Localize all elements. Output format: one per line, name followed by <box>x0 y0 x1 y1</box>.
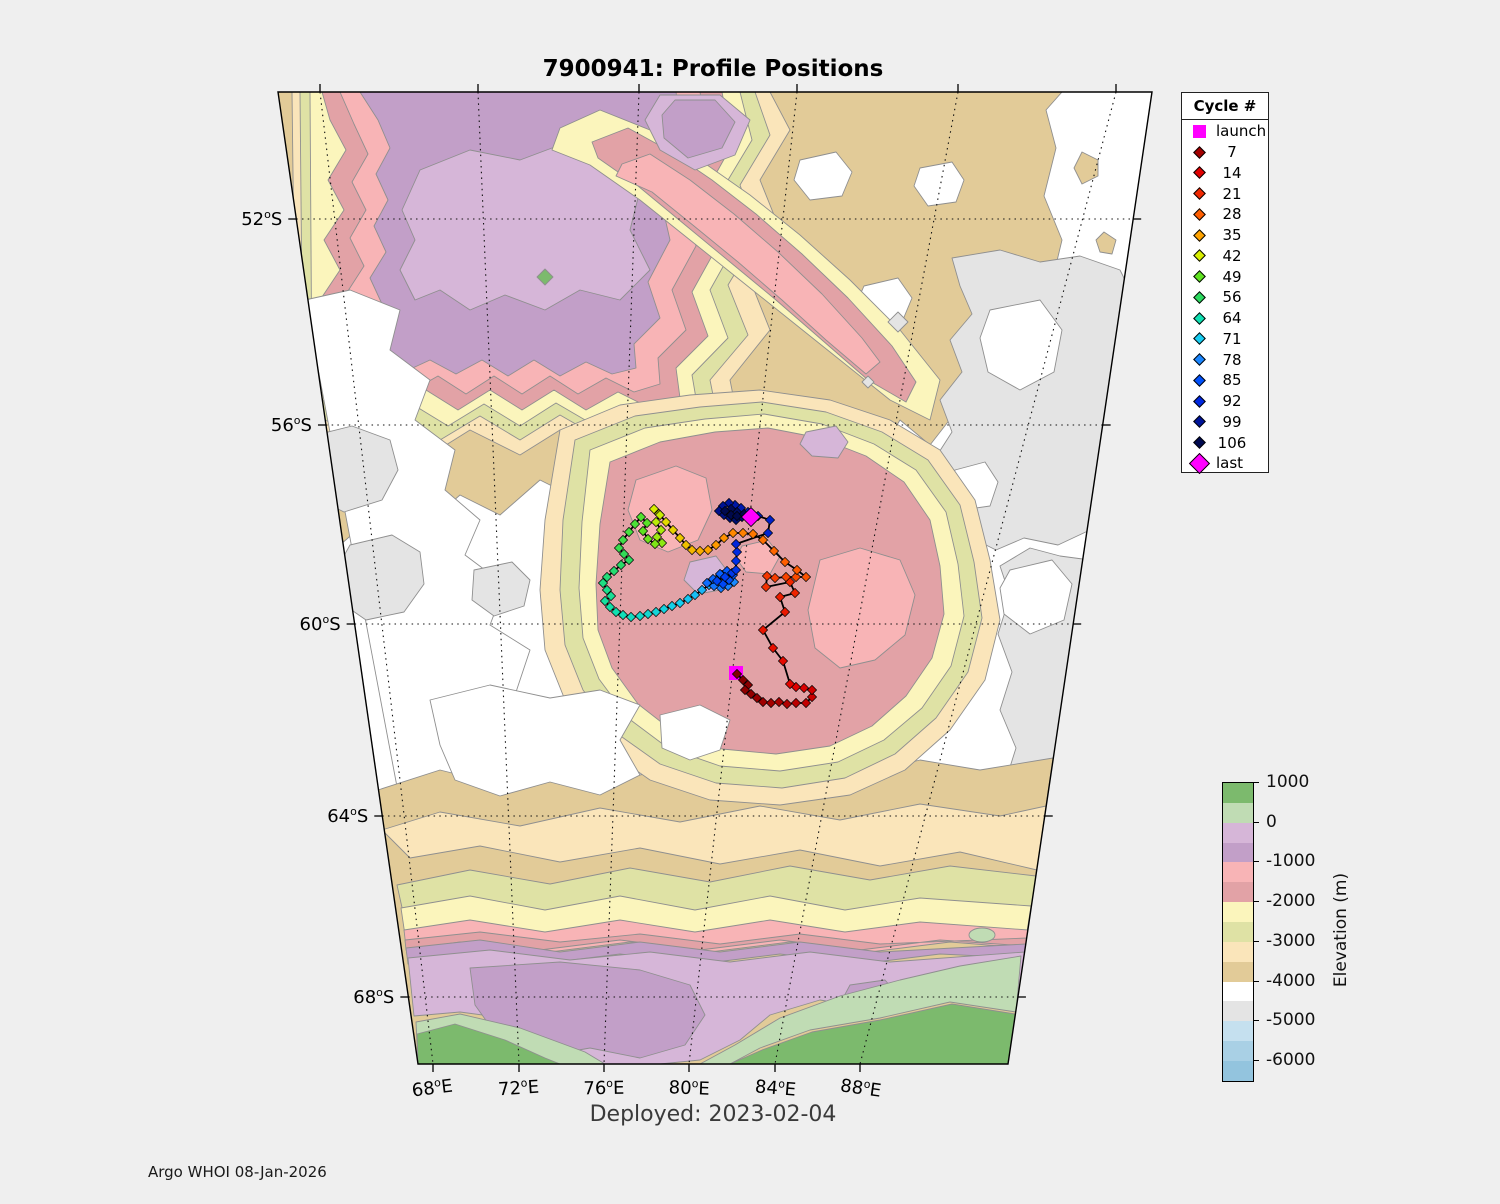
legend-entry-label: 7 <box>1210 143 1268 161</box>
legend-entry-label: 85 <box>1210 371 1268 389</box>
colorbar-tick <box>1253 782 1259 783</box>
legend-entry-label: last <box>1216 454 1243 472</box>
plot-title: 7900941: Profile Positions <box>543 56 884 82</box>
colorbar-segment-tanM3000 <box>1223 942 1253 962</box>
axis-tick-label: 84oE <box>754 1075 797 1100</box>
legend-entry-last: last <box>1182 453 1268 473</box>
colorbar-segment-pinkM1500 <box>1223 882 1253 902</box>
legend-entry-7: 7 <box>1182 142 1268 162</box>
legend-entry-label: 21 <box>1210 185 1268 203</box>
legend-entry-label: 49 <box>1210 268 1268 286</box>
legend-rows: launch714212835424956647178859299106last <box>1182 120 1268 475</box>
legend-entry-56: 56 <box>1182 287 1268 307</box>
colorbar-tick-label: -2000 <box>1266 891 1315 911</box>
colorbar-segment-grayM4500 <box>1223 1001 1253 1021</box>
colorbar-segment-blueM5500 <box>1223 1041 1253 1061</box>
diamond-marker-icon <box>1188 210 1210 219</box>
diamond-marker-icon <box>1188 376 1210 385</box>
diamond-marker-icon <box>1188 272 1210 281</box>
legend-entry-label: 71 <box>1210 330 1268 348</box>
legend-entry-label: 14 <box>1210 164 1268 182</box>
colorbar-segment-yellowM2000 <box>1223 902 1253 922</box>
legend-entry-label: 78 <box>1210 351 1268 369</box>
colorbar-segment-green500 <box>1223 803 1253 823</box>
legend-entry-label: 42 <box>1210 247 1268 265</box>
legend-entry-label: 92 <box>1210 392 1268 410</box>
legend-entry-label: 99 <box>1210 413 1268 431</box>
colorbar-tick-label: 1000 <box>1266 772 1309 792</box>
diamond-marker-icon <box>1188 417 1210 426</box>
colorbar-tick <box>1253 1020 1259 1021</box>
colorbar-segment-blueM5000 <box>1223 1021 1253 1041</box>
colorbar-tick-label: -4000 <box>1266 971 1315 991</box>
cycle-legend: Cycle # launch71421283542495664717885929… <box>1181 92 1269 473</box>
legend-entry-71: 71 <box>1182 329 1268 349</box>
legend-entry-21: 21 <box>1182 184 1268 204</box>
legend-header: Cycle # <box>1182 93 1268 120</box>
credit-label: Argo WHOI 08-Jan-2026 <box>148 1163 327 1181</box>
colorbar-segment-pinkM1000 <box>1223 862 1253 882</box>
elevation-colorbar <box>1222 782 1254 1082</box>
colorbar-segment-whiteM4000 <box>1223 982 1253 1002</box>
colorbar-segment-purple0 <box>1223 823 1253 843</box>
legend-entry-label: 35 <box>1210 226 1268 244</box>
diamond-marker-icon <box>1188 397 1210 406</box>
diamond-marker-icon <box>1188 334 1210 343</box>
diamond-marker-icon <box>1188 251 1210 260</box>
axis-tick-label: 60oS <box>300 613 341 635</box>
colorbar-segment-green1000 <box>1223 783 1253 803</box>
diamond-marker-icon <box>1188 231 1210 240</box>
diamond-marker-icon <box>1188 438 1210 447</box>
legend-entry-64: 64 <box>1182 308 1268 328</box>
axis-tick-label: 76oE <box>583 1077 624 1100</box>
colorbar-tick-label: -6000 <box>1266 1050 1315 1070</box>
legend-entry-label: 56 <box>1210 288 1268 306</box>
legend-entry-label: 28 <box>1210 205 1268 223</box>
colorbar-tick-label: -5000 <box>1266 1010 1315 1030</box>
colorbar-tick-label: -3000 <box>1266 931 1315 951</box>
axis-tick-label: 88oE <box>839 1074 883 1101</box>
legend-entry-78: 78 <box>1182 350 1268 370</box>
axis-tick-label: 68oE <box>411 1075 454 1102</box>
axis-tick-label: 68oS <box>353 986 394 1008</box>
colorbar-title: Elevation (m) <box>1331 873 1351 987</box>
colorbar-tick-label: 0 <box>1266 812 1277 832</box>
legend-entry-35: 35 <box>1182 225 1268 245</box>
colorbar-segment-blueM6000 <box>1223 1061 1253 1081</box>
legend-entry-49: 49 <box>1182 267 1268 287</box>
legend-entry-85: 85 <box>1182 370 1268 390</box>
legend-entry-99: 99 <box>1182 412 1268 432</box>
axis-tick-label: 80oE <box>668 1076 710 1099</box>
legend-entry-14: 14 <box>1182 163 1268 183</box>
legend-entry-106: 106 <box>1182 433 1268 453</box>
colorbar-tick <box>1253 901 1259 902</box>
legend-entry-label: launch <box>1216 122 1266 140</box>
colorbar-tick <box>1253 1060 1259 1061</box>
axis-tick-label: 64oS <box>327 805 368 827</box>
legend-entry-92: 92 <box>1182 391 1268 411</box>
figure-root: 52oS56oS60oS64oS68oS68oE72oE76oE80oE84oE… <box>0 0 1500 1200</box>
legend-entry-label: 64 <box>1210 309 1268 327</box>
colorbar-tick <box>1253 861 1259 862</box>
diamond-marker-icon <box>1188 168 1210 177</box>
colorbar-segment-tanM3500 <box>1223 962 1253 982</box>
diamond-marker-icon <box>1188 314 1210 323</box>
legend-entry-label: 106 <box>1210 434 1268 452</box>
diamond-marker-icon <box>1188 355 1210 364</box>
legend-entry-28: 28 <box>1182 204 1268 224</box>
legend-entry-42: 42 <box>1182 246 1268 266</box>
colorbar-segment-purpleM500 <box>1223 843 1253 863</box>
legend-entry-launch: launch <box>1182 121 1268 141</box>
colorbar-tick <box>1253 941 1259 942</box>
square-marker-icon <box>1188 125 1210 138</box>
diamond-marker-icon <box>1188 293 1210 302</box>
diamond-marker-icon <box>1188 148 1210 157</box>
axis-tick-label: 72oE <box>497 1076 539 1101</box>
axis-tick-label: 52oS <box>241 208 282 230</box>
axis-tick-label: 56oS <box>271 414 312 436</box>
colorbar-tick <box>1253 981 1259 982</box>
deployed-label: Deployed: 2023-02-04 <box>590 1102 837 1127</box>
diamond-large-marker-icon <box>1188 456 1210 471</box>
diamond-marker-icon <box>1188 189 1210 198</box>
colorbar-segment-oliveM2500 <box>1223 922 1253 942</box>
colorbar-tick <box>1253 822 1259 823</box>
colorbar-tick-label: -1000 <box>1266 851 1315 871</box>
